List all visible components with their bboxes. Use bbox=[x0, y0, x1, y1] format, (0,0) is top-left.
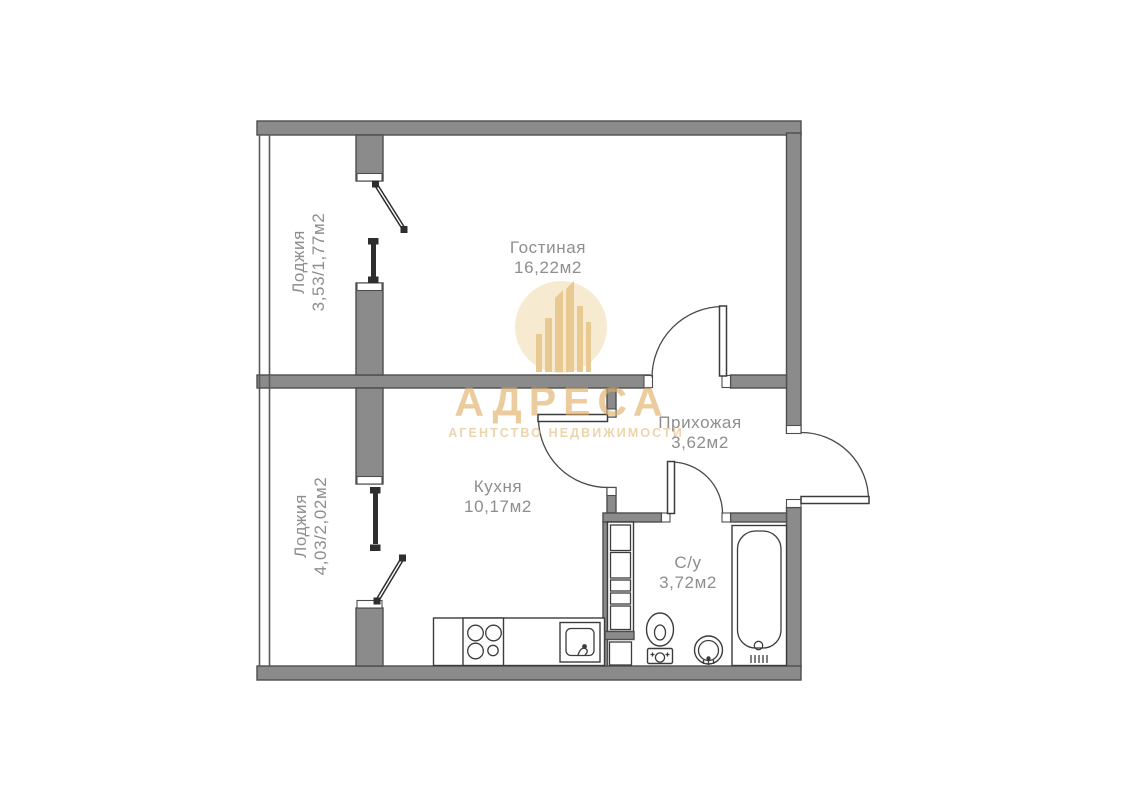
toilet-tank bbox=[648, 649, 673, 664]
casement-tip bbox=[399, 555, 406, 562]
wall-loggia-top-b bbox=[356, 283, 383, 375]
toilet-bowl bbox=[647, 613, 674, 646]
door-entrance bbox=[801, 433, 869, 504]
door-leaf-kitchen bbox=[538, 415, 608, 422]
jamb-window-top-loggia-b bbox=[357, 283, 382, 291]
room-area: 3,53/1,77м2 bbox=[309, 213, 329, 312]
jamb-window-top-loggia bbox=[357, 174, 382, 182]
window-cap bbox=[368, 238, 379, 245]
shaft-lower-box bbox=[610, 642, 632, 665]
room-name: Прихожая bbox=[658, 413, 742, 433]
door-leaf-living bbox=[720, 306, 727, 376]
shaft-cap-wall bbox=[605, 632, 634, 640]
room-name: Кухня bbox=[464, 477, 532, 497]
shaft-outline bbox=[608, 522, 634, 632]
room-area: 3,62м2 bbox=[658, 433, 742, 453]
room-name: Гостиная bbox=[510, 238, 586, 258]
floorplan-drawing bbox=[0, 0, 1132, 800]
wall-living-kitchen-divider bbox=[257, 375, 650, 388]
window-cap bbox=[370, 545, 381, 552]
room-area: 4,03/2,02м2 bbox=[311, 477, 331, 576]
jamb-bath-door-right bbox=[722, 513, 731, 522]
bathroom-fixtures bbox=[605, 522, 787, 666]
jamb-living-door-right bbox=[722, 376, 731, 388]
stove bbox=[463, 618, 504, 666]
room-area: 10,17м2 bbox=[464, 497, 532, 517]
window-glass-bottom bbox=[373, 487, 378, 544]
wall-right-lower bbox=[787, 508, 802, 668]
loggia-glazing-lines bbox=[260, 135, 270, 666]
jamb-living-door-left bbox=[644, 376, 653, 388]
casement-hinge bbox=[374, 598, 381, 605]
bathtub-outer bbox=[732, 526, 787, 666]
wall-bathroom-north-left bbox=[603, 513, 662, 522]
window-loggia-top bbox=[368, 181, 408, 284]
wall-loggia-bottom-b bbox=[356, 608, 383, 666]
floorplan-canvas: АДРЕСА АГЕНТСТВО НЕДВИЖИМОСТИ Гостиная 1… bbox=[0, 0, 1132, 800]
room-name: Лоджия bbox=[289, 213, 309, 312]
room-label-kitchen: Кухня 10,17м2 bbox=[464, 477, 532, 517]
jamb-bath-door-left bbox=[662, 513, 671, 522]
casement-flap-inner bbox=[377, 559, 403, 602]
door-living-room bbox=[652, 306, 727, 378]
door-leaf-entrance bbox=[801, 497, 869, 504]
wall-right-upper bbox=[787, 133, 802, 433]
room-name: Лоджия bbox=[291, 477, 311, 576]
window-loggia-bottom bbox=[370, 487, 406, 605]
room-label-bathroom: С/у 3,72м2 bbox=[659, 553, 717, 593]
window-glass-top bbox=[371, 238, 376, 283]
room-label-loggia-top: Лоджия 3,53/1,77м2 bbox=[289, 213, 329, 312]
room-label-hallway: Прихожая 3,62м2 bbox=[658, 413, 742, 453]
room-label-living: Гостиная 16,22м2 bbox=[510, 238, 586, 278]
window-cap bbox=[368, 277, 379, 284]
room-area: 16,22м2 bbox=[510, 258, 586, 278]
jamb-kitchen-door-bottom bbox=[607, 488, 616, 496]
casement-hinge bbox=[372, 181, 379, 188]
jamb-window-bottom-loggia bbox=[357, 477, 382, 485]
wall-bathroom-north-right bbox=[731, 513, 787, 522]
jamb-entrance-bottom bbox=[787, 500, 802, 508]
bathtub bbox=[732, 526, 787, 666]
wall-loggia-bottom-a bbox=[356, 388, 383, 484]
kitchen-counter bbox=[434, 618, 605, 666]
room-label-loggia-bottom: Лоджия 4,03/2,02м2 bbox=[291, 477, 331, 576]
wall-hallway-north-right bbox=[731, 375, 787, 388]
room-name: С/у bbox=[659, 553, 717, 573]
door-leaf-bathroom bbox=[668, 462, 675, 514]
door-kitchen bbox=[538, 415, 608, 488]
wall-bottom bbox=[257, 666, 801, 680]
window-cap bbox=[370, 487, 381, 494]
room-area: 3,72м2 bbox=[659, 573, 717, 593]
jamb-kitchen-door-top bbox=[607, 409, 616, 417]
toilet bbox=[647, 613, 674, 664]
casement-tip bbox=[401, 226, 408, 233]
wall-top bbox=[257, 121, 801, 135]
door-bathroom bbox=[668, 462, 723, 514]
bathroom-sink bbox=[695, 636, 723, 665]
walls bbox=[257, 121, 801, 680]
jamb-entrance-top bbox=[787, 426, 802, 434]
casement-flap-inner bbox=[376, 184, 405, 230]
shaft-cabinet bbox=[605, 522, 634, 665]
